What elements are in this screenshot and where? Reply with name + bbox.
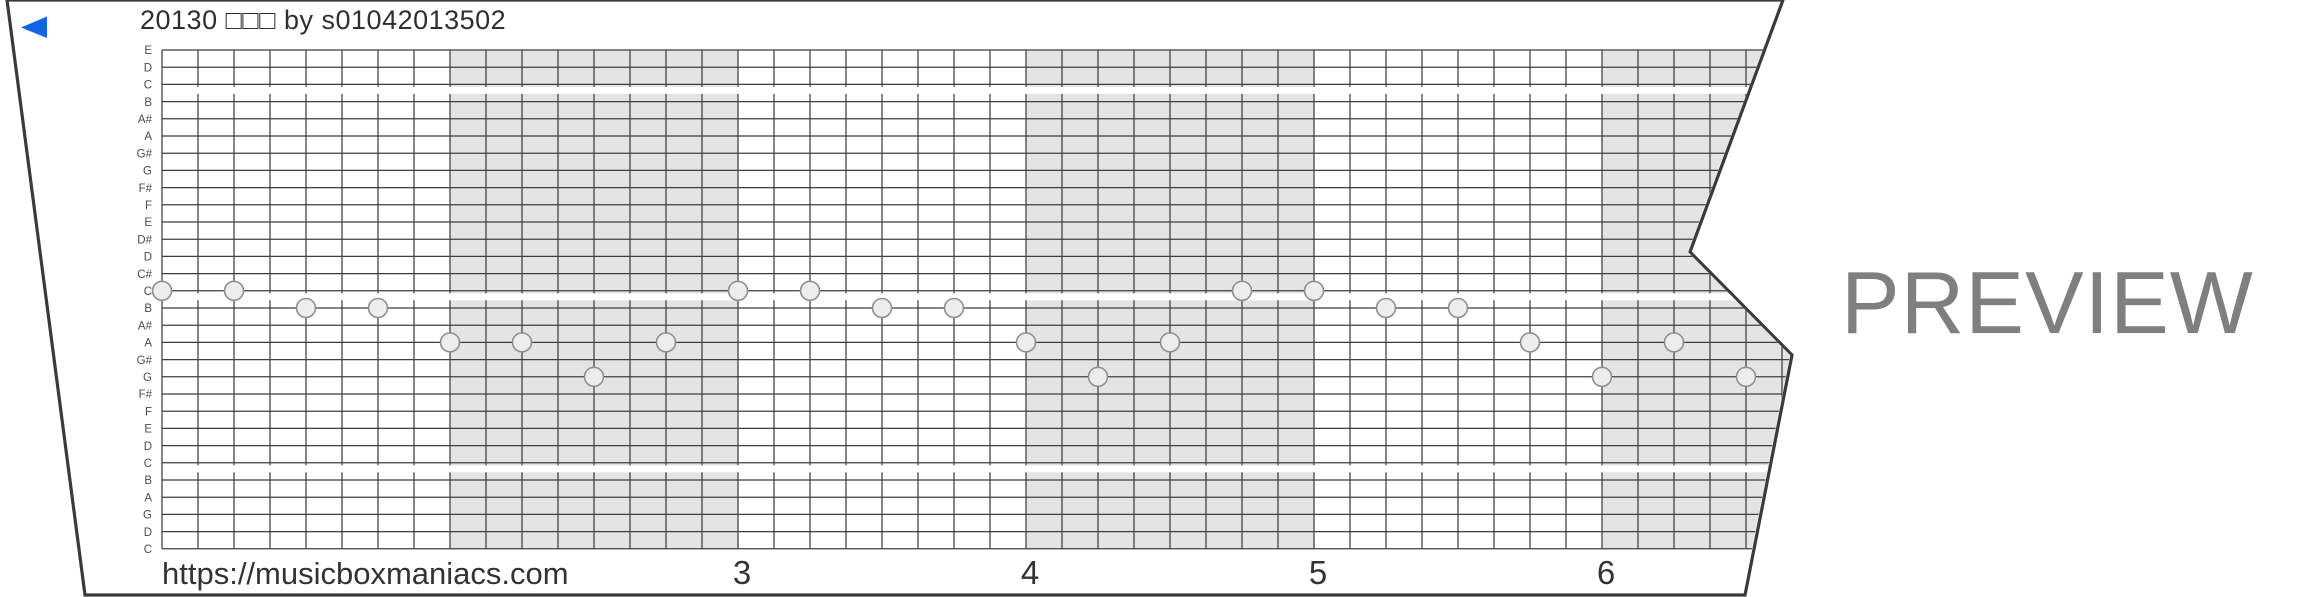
note-row-label: C [144,544,152,556]
note-row-label: F [145,200,152,212]
note-row-label: D# [137,234,152,246]
octave-separator [164,87,1812,94]
note-hole [1233,281,1252,300]
note-row-label: B [144,475,152,487]
octave-separator [164,293,1812,300]
note-hole [1377,299,1396,318]
note-row-label: F [145,406,152,418]
note-row-label: D [144,62,152,74]
note-hole [1305,281,1324,300]
page-title: 20130 □□□ by s01042013502 [140,5,506,36]
note-row-label: D [144,441,152,453]
note-hole [1593,367,1612,386]
note-row-label: D [144,527,152,539]
note-hole [801,281,820,300]
note-row-label: C# [137,269,152,281]
note-row-label: C [144,458,152,470]
note-row-label: A# [138,320,153,332]
note-hole [513,333,532,352]
note-hole [1449,299,1468,318]
note-hole [441,333,460,352]
note-hole [1521,333,1540,352]
note-row-label: E [144,424,152,436]
note-row-label: G# [137,148,153,160]
note-hole [153,281,172,300]
note-row-label: G [143,372,152,384]
note-row-label: G [143,510,152,522]
note-row-label: B [144,303,152,315]
measure-number: 5 [1309,554,1327,591]
site-url: https://musicboxmaniacs.com [162,556,569,592]
note-row-label: F# [139,389,153,401]
note-hole [1161,333,1180,352]
note-hole [225,281,244,300]
note-row-label: A# [138,114,153,126]
measure-number: 6 [1597,554,1615,591]
note-row-label: E [144,217,152,229]
note-hole [1665,333,1684,352]
note-hole [945,299,964,318]
note-row-label: B [144,97,152,109]
preview-watermark: PREVIEW [1841,252,2254,354]
measure-number: 3 [733,554,751,591]
note-row-label: A [144,131,152,143]
octave-separator [164,465,1812,472]
measure-number: 4 [1021,554,1039,591]
note-row-label: A [144,492,152,504]
note-hole [657,333,676,352]
note-row-label: C [144,286,152,298]
note-hole [585,367,604,386]
music-box-preview: EDCBA#AG#GF#FED#DC#CBA#AG#GF#FEDCBAGDC34… [0,0,2310,597]
note-row-label: E [144,45,152,57]
note-row-label: D [144,252,152,264]
note-row-label: G [143,166,152,178]
note-hole [873,299,892,318]
note-hole [1737,367,1756,386]
note-row-label: A [144,338,152,350]
note-row-label: C [144,80,152,92]
note-row-label: F# [139,183,153,195]
note-hole [1089,367,1108,386]
note-hole [369,299,388,318]
note-hole [297,299,316,318]
note-hole [1017,333,1036,352]
note-hole [729,281,748,300]
note-row-label: G# [137,355,153,367]
